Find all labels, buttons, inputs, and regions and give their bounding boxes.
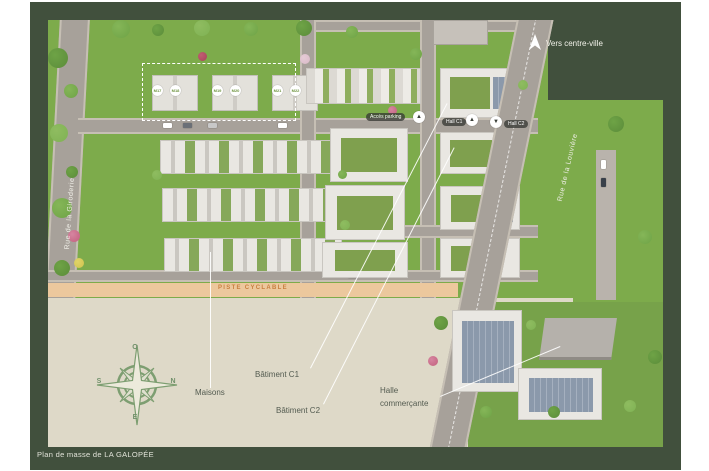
site-plan-screenshot: PISTE CYCLABLE bbox=[0, 0, 709, 471]
compass-letter-top: O bbox=[130, 344, 140, 351]
car bbox=[601, 160, 606, 169]
map-canvas: PISTE CYCLABLE bbox=[48, 20, 663, 447]
tree-icon bbox=[648, 350, 662, 364]
terraced-houses bbox=[306, 68, 421, 104]
building bbox=[433, 20, 488, 45]
tree-icon bbox=[338, 170, 347, 179]
callout-halle-line1: Halle bbox=[380, 384, 428, 397]
flower-bush-icon bbox=[198, 52, 207, 61]
callout-halle-line2: commerçante bbox=[380, 397, 428, 410]
callout-maisons: Maisons bbox=[195, 388, 225, 397]
car bbox=[208, 123, 217, 128]
callout-halle-commercante: Halle commerçante bbox=[380, 384, 428, 410]
bike-path-label: PISTE CYCLABLE bbox=[218, 285, 288, 291]
lot-badge: M21 bbox=[272, 85, 283, 96]
tree-icon bbox=[434, 316, 448, 330]
street-name-louviere: Rue de la Louvière bbox=[551, 108, 585, 226]
tree-icon bbox=[480, 406, 492, 418]
tree-icon bbox=[296, 20, 312, 36]
tree-icon bbox=[48, 48, 68, 68]
car bbox=[278, 123, 287, 128]
tree-icon bbox=[518, 80, 528, 90]
lot-badge: M19 bbox=[212, 85, 223, 96]
car bbox=[163, 123, 172, 128]
road-vertical-2 bbox=[420, 20, 436, 298]
tree-icon bbox=[346, 26, 358, 38]
tree-icon bbox=[50, 124, 68, 142]
tree-icon bbox=[244, 22, 258, 36]
tree-icon bbox=[152, 24, 164, 36]
compass-letter-right: N bbox=[168, 378, 178, 385]
road-top bbox=[300, 20, 538, 32]
tree-icon bbox=[340, 220, 350, 230]
tree-icon bbox=[112, 20, 130, 38]
compass-letter-bottom: E bbox=[130, 414, 140, 421]
tree-icon bbox=[526, 320, 536, 330]
roof-garden bbox=[450, 77, 490, 109]
north-arrow-icon bbox=[528, 34, 542, 56]
building bbox=[325, 185, 405, 240]
parking-strip-east bbox=[596, 150, 616, 300]
hall-c2-arrow-icon: ▼ bbox=[490, 116, 502, 128]
car bbox=[601, 178, 606, 187]
flower-bush-icon bbox=[300, 54, 310, 64]
house-row bbox=[160, 140, 332, 174]
flower-bush-icon bbox=[74, 258, 84, 268]
lot-badge: M20 bbox=[230, 85, 241, 96]
tree-icon bbox=[624, 400, 636, 412]
hall-c1-arrow-icon: ▲ bbox=[466, 114, 478, 126]
solar-panel bbox=[462, 321, 514, 383]
house-row bbox=[164, 238, 342, 272]
lot-badge: M17 bbox=[152, 85, 163, 96]
centre-ville-label: Vers centre-ville bbox=[546, 39, 603, 48]
leader-line-maisons bbox=[210, 252, 211, 388]
hall-c2-label: Hall C2 bbox=[504, 120, 528, 128]
halle-building bbox=[539, 318, 617, 360]
roof-garden bbox=[341, 138, 397, 172]
tree-icon bbox=[152, 170, 162, 180]
tree-icon bbox=[608, 116, 624, 132]
hall-c1-label: Hall C1 bbox=[442, 118, 466, 126]
flower-bush-icon bbox=[428, 356, 438, 366]
lot-badge: M22 bbox=[290, 85, 301, 96]
callout-batiment-c1: Bâtiment C1 bbox=[255, 370, 299, 379]
callout-batiment-c2: Bâtiment C2 bbox=[276, 406, 320, 415]
dark-green-corner bbox=[548, 20, 663, 100]
building bbox=[452, 310, 522, 392]
roof-garden bbox=[450, 140, 492, 167]
house-row bbox=[162, 188, 336, 222]
tree-icon bbox=[638, 230, 652, 244]
building bbox=[518, 368, 602, 420]
acces-parking-label: Accès parking bbox=[366, 113, 405, 121]
compass-letter-left: S bbox=[94, 378, 104, 385]
lot-badge: M18 bbox=[170, 85, 181, 96]
tree-icon bbox=[194, 20, 210, 36]
parking-entry-arrow-icon: ▲ bbox=[413, 111, 425, 123]
tree-icon bbox=[64, 84, 78, 98]
tree-icon bbox=[548, 406, 560, 418]
plan-caption: Plan de masse de LA GALOPÉE bbox=[37, 450, 154, 459]
tree-icon bbox=[410, 48, 422, 60]
solar-panel bbox=[529, 378, 593, 412]
car bbox=[183, 123, 192, 128]
plan-frame: PISTE CYCLABLE bbox=[30, 2, 681, 470]
